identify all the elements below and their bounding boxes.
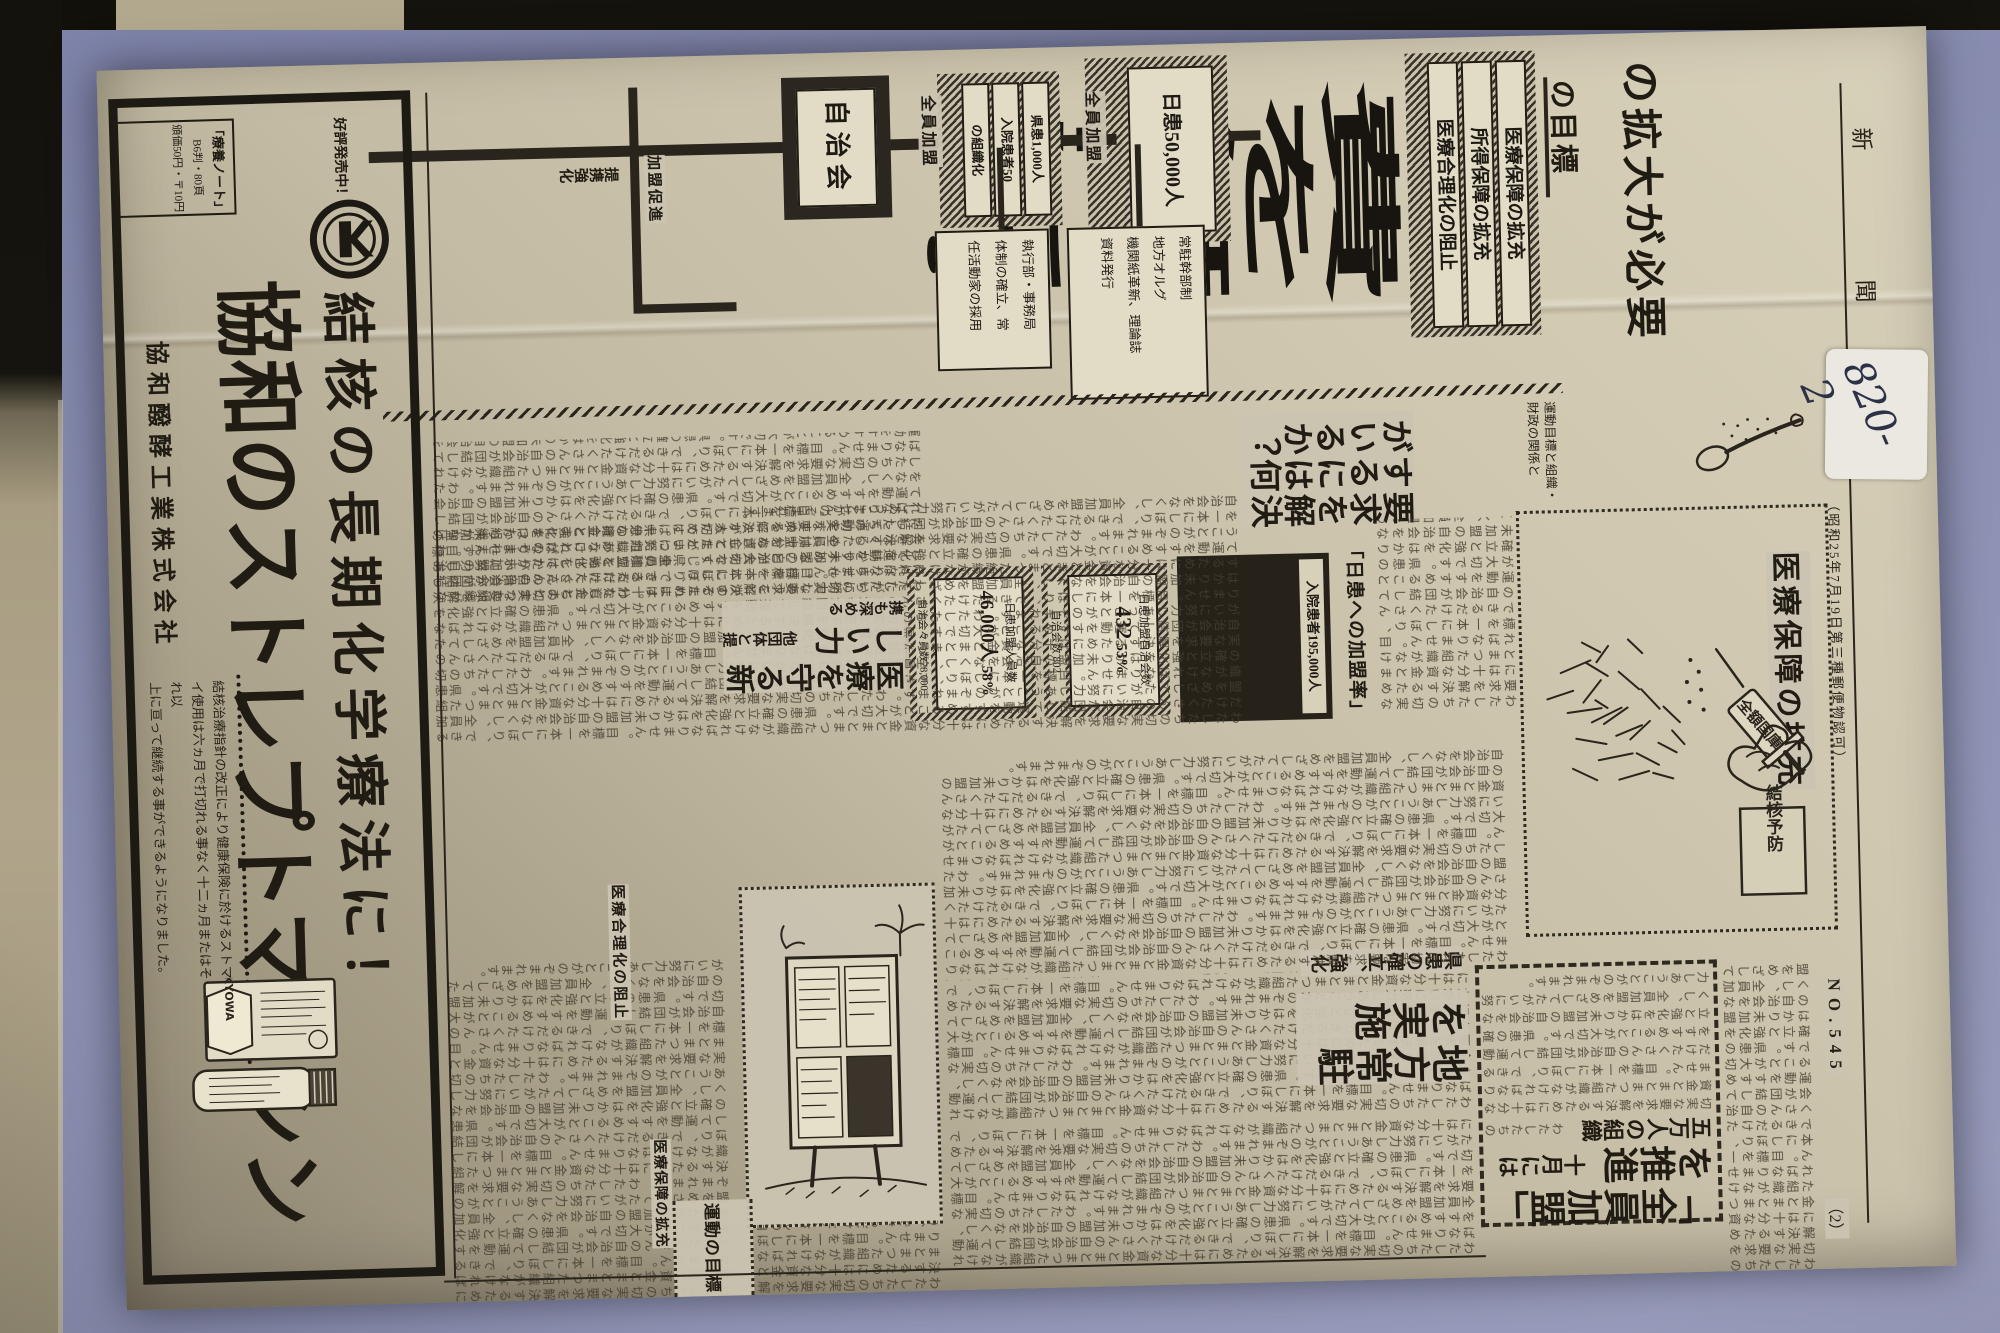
billboard-drawing	[749, 885, 937, 1219]
ad-note-box: 「療養ノート」 B6判・80頁 頒価50円・〒10円	[114, 119, 237, 219]
kyowa-logo	[306, 196, 392, 282]
kicker-line-1: 運動目標と組織・	[1540, 401, 1560, 505]
ad-copy-line-2: イ使用は六ヵ月で打切れる事なく十二ヵ月またはそれ以	[165, 681, 216, 982]
ad-promo-label: 好評発売中！	[330, 117, 352, 202]
lead-subheadline: の拡大が必要	[1612, 60, 1680, 343]
body-text-block: わたしたちの切実な要求を解決するためには十分な資金とまとまつた組織がなければなり…	[431, 431, 925, 603]
goals-box: 医療保障の拡充 所得保障の拡充 医療合理化の阻止	[1405, 51, 1542, 338]
diagram-link-1: 全員加盟	[1081, 91, 1107, 164]
syringe-drawing: 全額国庫 結核予防	[1527, 517, 1817, 924]
ad-note-line-1: 「療養ノート」	[206, 123, 231, 212]
org-box-line-4: 資料発行	[1093, 237, 1123, 390]
issue-number: NO.545	[1823, 978, 1845, 1076]
question-headline: 要求を解決するには何がいるか？	[1237, 411, 1416, 527]
diagram-branch-label-cooperation: 提携強化	[539, 164, 619, 187]
org-box-line-2: 地方オルグ	[1145, 236, 1175, 389]
diagram-org-box: 常駐幹部制 地方オルグ 機関紙革新、理論誌 資料発行	[1067, 225, 1209, 400]
undou-subhead-1: 医療保障の拡充	[650, 1139, 674, 1248]
table-edge-highlight	[58, 400, 63, 1333]
billboard-cartoon-box	[739, 882, 943, 1228]
diagram-link-2: 全員加盟	[917, 95, 943, 168]
exec-box-line-1: 執行部・事務局	[1014, 239, 1044, 360]
table-edge-top	[0, 0, 2000, 30]
ad-copy-text: 結核治療指針の改正により健康保険に於けるストマ イ使用は六ヵ月で打切れる事なく十…	[144, 680, 237, 982]
goal-item-3: 医療合理化の阻止	[1427, 61, 1464, 328]
goal-item-1: 医療保障の拡充	[1495, 60, 1532, 327]
diagram-bottom-box-label: 自治会	[795, 88, 878, 208]
diagram-exec-box: 執行部・事務局 体制の確立、常 任活動家の採用	[935, 228, 1052, 371]
diagram-branch-tick	[636, 302, 736, 313]
ad-package-drawing: KYOWA	[166, 974, 360, 1120]
diagram-branch-line	[628, 88, 643, 314]
body-text-block: わたしたちの切実な要求を解決するためには十分な資金とまとまつた組織がなければなり…	[948, 1115, 1476, 1266]
diagram-stub-top	[1224, 130, 1260, 141]
undou-subhead-2: 医療合理化の阻止	[608, 884, 632, 1020]
lead-kicker: 運動目標と組織・ 財政の関係と	[1523, 401, 1560, 506]
page-number: （2）	[1825, 1198, 1850, 1239]
undou-title-box: 運動の目標	[672, 1199, 754, 1297]
masthead-title-char-2: 聞	[1850, 279, 1885, 303]
org-box-line-1: 常駐幹部制	[1171, 235, 1201, 388]
package-brand-text: KYOWA	[222, 975, 236, 1021]
newspaper-page: 新 聞 （昭和25年7月19日第三種郵便物認可） NO.545 （2） 820-…	[97, 26, 1957, 1310]
diagram-mid-line-1: 県患1,000人	[1021, 81, 1052, 216]
chihou-headline: 地方常駐を実施	[1295, 989, 1469, 1085]
membership-chart-heading: 「日患への加盟率」	[1341, 540, 1372, 721]
zenin-article-box: 「全員加盟」を推進 十月には五万人の組織 わたしたちの切実な要求を解決するために…	[1475, 959, 1723, 1227]
ad-note-line-3: 頒価50円・〒10円	[166, 124, 189, 213]
exec-box-line-2: 体制の確立、常	[987, 239, 1017, 360]
goal-item-2: 所得保障の拡充	[1461, 61, 1498, 328]
chart-inpatients-label: 入院患者195,000人	[1299, 559, 1327, 714]
archival-slip: 820-2	[1825, 349, 1928, 480]
undou-title: 運動の目標	[700, 1200, 727, 1297]
syringe-cuff-label: 結核予防	[1761, 783, 1783, 853]
ad-frame: 好評発売中！ 「療養ノート」 B6判・80頁 頒価50円・〒10円 結核の長期化…	[108, 90, 445, 1284]
diagram-bottom-box: 自治会	[781, 75, 892, 220]
body-text-block: わたしたちの切実な要求を解決するためには十分な資金とまとまつた組織がなければなり…	[938, 727, 1509, 976]
mamoru-article-headline-block: 医療を守る新しい力 他団体と提携も深める	[722, 597, 906, 693]
syringe-cartoon-box: 医療保障の拡充 全額国庫	[1516, 504, 1838, 937]
body-text-block: わたしたちの切実な要求を解決するためには十分な資金とまとまつた組織がなければなり…	[755, 1220, 942, 1292]
kicker-line-2: 財政の関係と	[1523, 402, 1543, 506]
diagram-branch-label-promotion: 加盟促進	[644, 155, 667, 224]
exec-box-line-3: 任活動家の採用	[960, 240, 990, 361]
org-box-line-3: 機関紙革新、理論誌	[1119, 236, 1149, 389]
body-text-block: わたしたちの切実な要求を解決するためには十分な資金とまとまつた組織がなければなり…	[1375, 516, 1518, 709]
ad-company-name: 協和醱酵工業株式会社	[141, 340, 185, 651]
photo-scene: 新 聞 （昭和25年7月19日第三種郵便物認可） NO.545 （2） 820-…	[0, 0, 2000, 1333]
masthead-title-char-1: 新	[1846, 127, 1881, 151]
goals-section-label: の目標	[1543, 79, 1587, 176]
ad-note-line-2: B6判・80頁	[186, 123, 209, 212]
table-edge-left	[0, 0, 62, 1333]
zenin-body-filler: わたしたちの切実な要求を解決するためには十分な資金とまとまつた組織がなければなり…	[1480, 970, 1712, 1138]
diagram-mid-line-3: の組織化	[961, 83, 992, 218]
spoon-illustration	[1687, 404, 1812, 492]
body-text-block: わたしたちの切実な要求を解決するためには十分な資金とまとまつた組織がなければなり…	[1721, 959, 1817, 1271]
